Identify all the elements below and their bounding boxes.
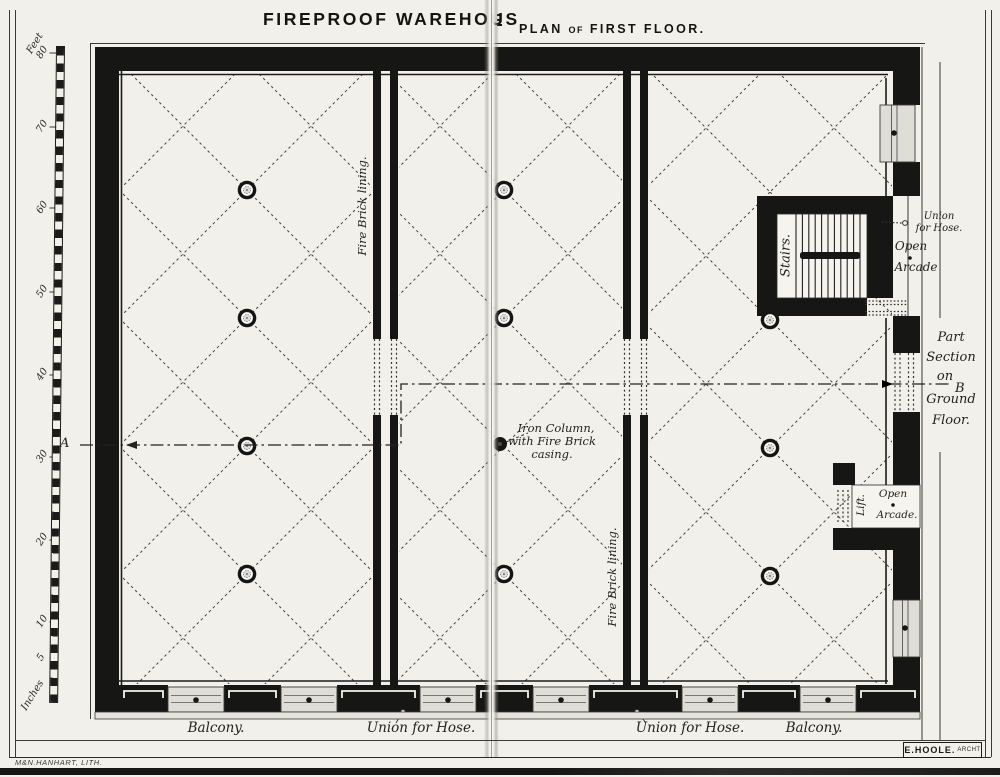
open-arcade-stairs-line2: Arcade <box>888 260 944 274</box>
fire-brick-lining-label-1: Fire Brick lining. <box>355 147 369 265</box>
part-section-line2: Section <box>916 350 986 365</box>
page-bottom-edge <box>0 768 1000 775</box>
floor-plan-drawing <box>0 0 1000 777</box>
stairs-label: Stairs. <box>779 221 794 291</box>
open-arcade-stairs-line1: Open <box>886 239 936 253</box>
ceiling-diagonals <box>123 75 892 684</box>
plate-border-left-outer <box>9 10 10 757</box>
iron-column-note-line2: with Fire Brick <box>492 434 612 448</box>
part-section-line4: Ground <box>916 392 986 407</box>
plate-rule-upper <box>15 740 985 741</box>
part-section-line3: on <box>910 369 980 384</box>
union-for-hose-label-right: Union for Hose. <box>620 720 760 736</box>
union-for-hose-top-line2: for Hose. <box>908 223 970 234</box>
subtitle-plan: PLAN <box>519 22 563 36</box>
page-fold-line <box>491 0 492 757</box>
iron-column-note-line1: Iron Column, <box>496 421 616 435</box>
open-arcade-lift-line2: Arcade. <box>870 509 924 521</box>
balcony-label-right: Balcony. <box>764 720 864 736</box>
subtitle-first-floor: FIRST FLOOR. <box>590 22 706 36</box>
open-arcade-lift-line1: Open <box>868 488 918 500</box>
balcony-slab <box>95 712 920 719</box>
part-section-line1: Part <box>916 330 986 345</box>
part-section-line5: Floor. <box>916 413 986 428</box>
warehouse-floor-plan-plate: Feet 80 70 60 50 40 30 20 10 5 Inches FI… <box>0 0 1000 777</box>
lithographer-credit: M&N.HANHART, LITH. <box>15 758 102 767</box>
iron-column-note-line3: casing. <box>492 447 612 461</box>
architect-name: E.HOOLE. <box>904 745 955 755</box>
architect-credit-box: E.HOOLE. ARCHT <box>903 742 982 758</box>
plate-border-left-inner <box>15 10 16 757</box>
section-marker-b: B <box>955 381 965 396</box>
section-marker-a: A <box>60 436 69 451</box>
lift-label: Lift. <box>855 482 867 528</box>
plate-border-right-outer <box>991 10 992 757</box>
plate-border-right-inner <box>985 10 986 757</box>
plate-title: FIREPROOF WAREHOUS <box>263 9 520 30</box>
fire-brick-lining-label-2: Fire Brick lining. <box>605 518 619 636</box>
architect-title: ARCHT <box>957 747 980 753</box>
union-for-hose-top-line1: Union <box>908 211 970 222</box>
subtitle-of: OF <box>569 25 585 35</box>
balcony-label-left: Balcony. <box>166 720 266 736</box>
plate-rule-lower <box>9 757 991 758</box>
stair-landing <box>800 252 860 259</box>
union-for-hose-label-left: Union for Hose. <box>351 720 491 736</box>
plate-subtitle: PLAN OF FIRST FLOOR. <box>519 22 706 36</box>
